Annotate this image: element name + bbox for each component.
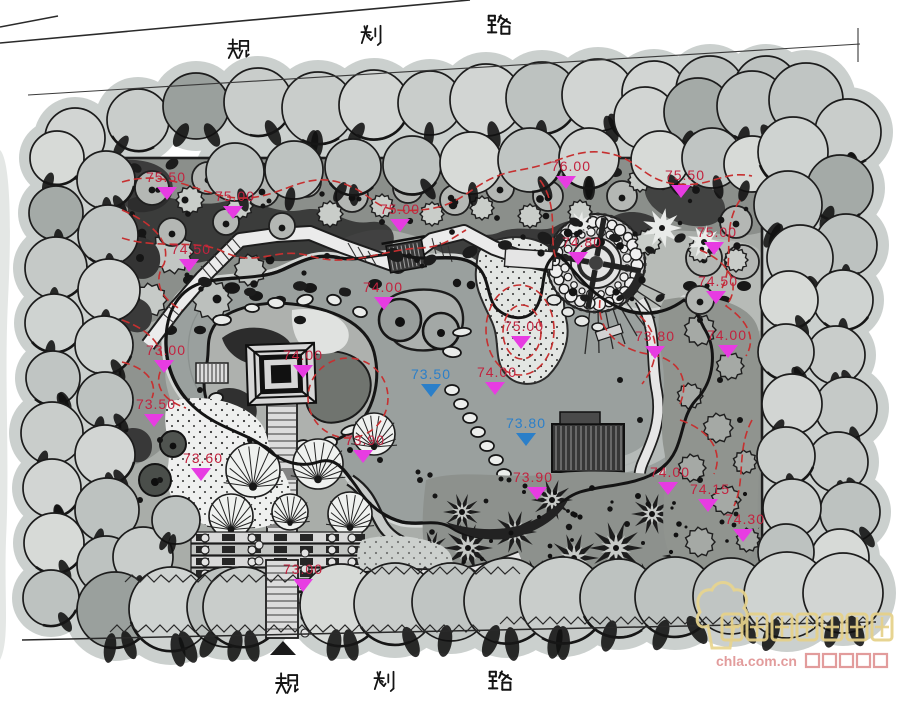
svg-text:74.00: 74.00 <box>477 364 517 380</box>
svg-text:74.80: 74.80 <box>562 234 602 250</box>
svg-text:chla.com.cn: chla.com.cn <box>716 653 797 669</box>
svg-text:73.50: 73.50 <box>411 366 451 382</box>
svg-text:75.00: 75.00 <box>504 318 544 334</box>
svg-text:73.00: 73.00 <box>283 561 323 577</box>
svg-text:73.80: 73.80 <box>635 328 675 344</box>
svg-text:73.80: 73.80 <box>506 415 546 431</box>
svg-text:74.00: 74.00 <box>707 327 747 343</box>
svg-text:73.90: 73.90 <box>345 432 385 448</box>
svg-text:74.15: 74.15 <box>690 481 730 497</box>
svg-text:74.50: 74.50 <box>171 241 211 257</box>
svg-text:74.00: 74.00 <box>283 347 323 363</box>
svg-text:75.50: 75.50 <box>665 167 705 183</box>
svg-text:73.50: 73.50 <box>136 396 176 412</box>
svg-text:73.60: 73.60 <box>183 450 223 466</box>
svg-text:73.00: 73.00 <box>146 342 186 358</box>
svg-text:74.30: 74.30 <box>725 511 765 527</box>
svg-text:74.00: 74.00 <box>650 464 690 480</box>
svg-text:74.50: 74.50 <box>698 273 738 289</box>
svg-text:76.00: 76.00 <box>551 158 591 174</box>
svg-text:75.00: 75.00 <box>215 188 255 204</box>
svg-text:75.50: 75.50 <box>146 169 186 185</box>
svg-text:74.00: 74.00 <box>363 279 403 295</box>
svg-text:75.00: 75.00 <box>380 201 420 217</box>
svg-text:75.00: 75.00 <box>697 224 737 240</box>
svg-text:73.90: 73.90 <box>513 469 553 485</box>
